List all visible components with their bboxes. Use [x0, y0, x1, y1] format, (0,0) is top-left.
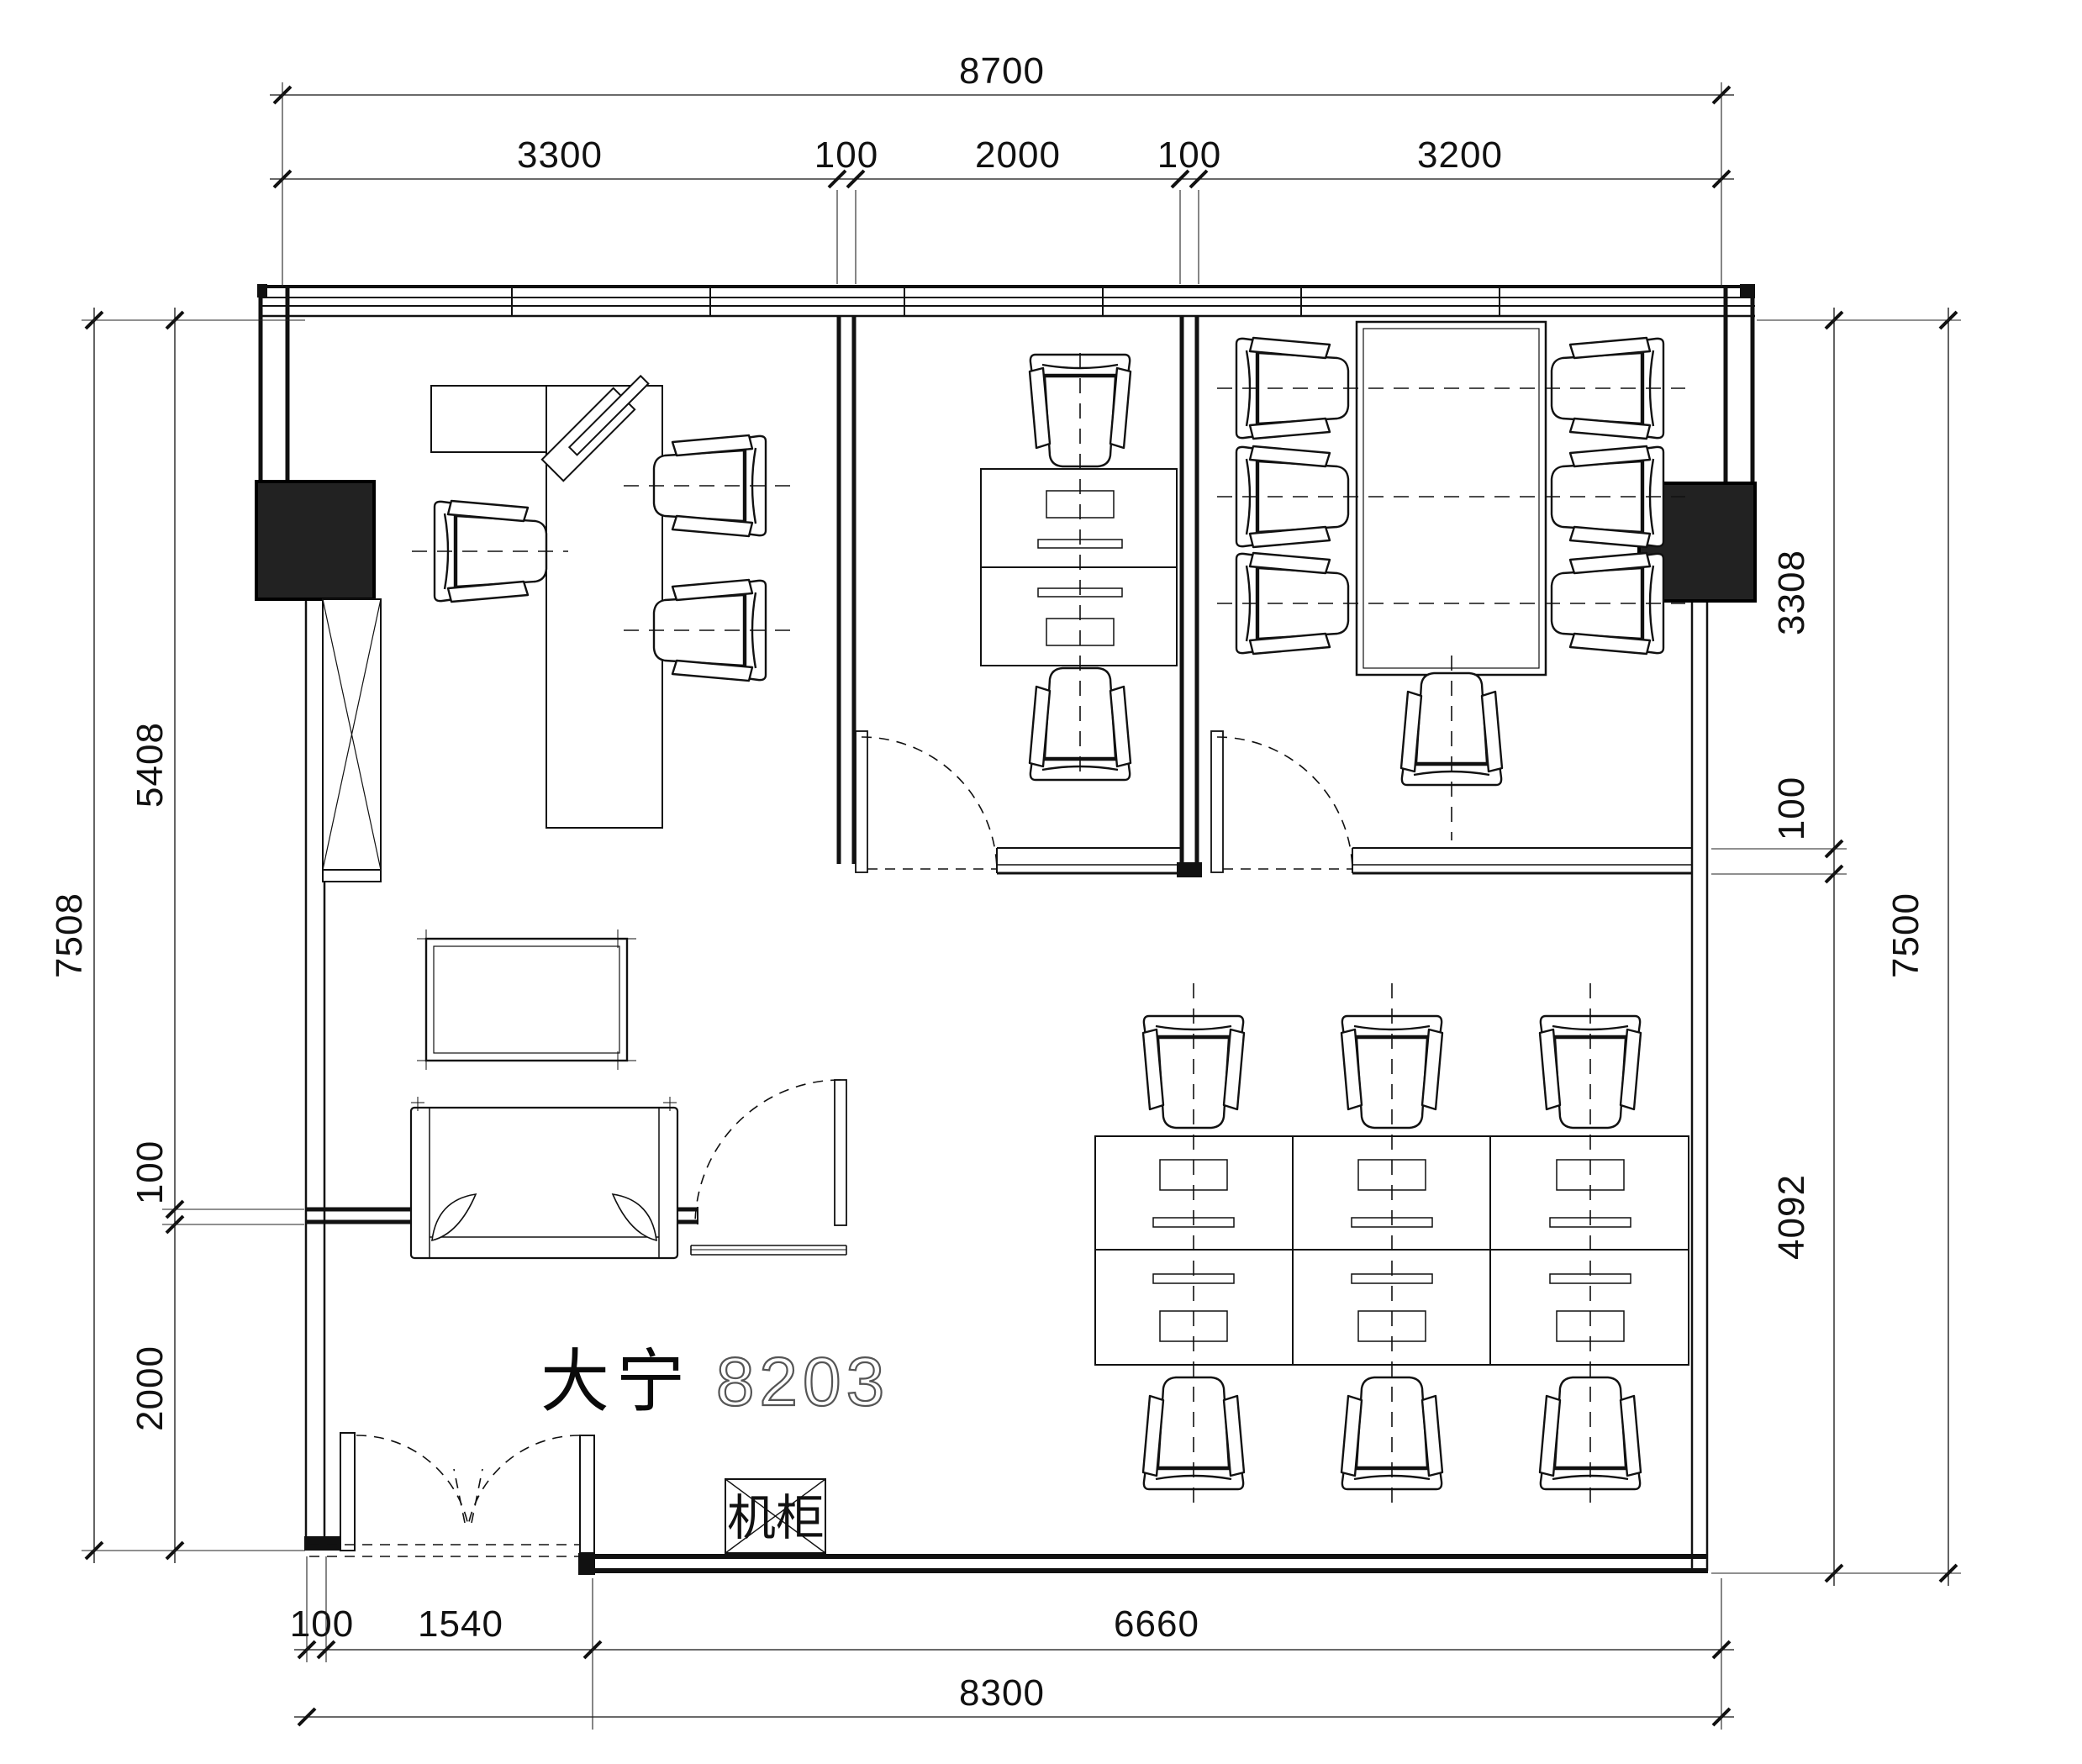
door-executive-office — [695, 1080, 846, 1225]
south-wall — [591, 1556, 1708, 1571]
dimension-top: 8700 3300 100 2000 100 3200 — [270, 50, 1734, 287]
dim-left-seg1: 100 — [129, 1140, 171, 1204]
dim-left-seg0: 5408 — [129, 722, 171, 808]
column-west — [256, 482, 374, 599]
unit-label-number: 8203 — [716, 1344, 889, 1420]
dim-left-seg2: 2000 — [129, 1345, 171, 1431]
server-cabinet: 机柜 — [725, 1479, 825, 1553]
west-wall — [261, 287, 343, 1551]
dim-right-seg0: 3308 — [1771, 550, 1812, 635]
dim-bottom-seg1: 1540 — [418, 1603, 503, 1645]
unit-label-prefix: 大宁 — [540, 1344, 692, 1420]
dim-bottom-seg2: 6660 — [1114, 1603, 1199, 1645]
dim-top-seg4: 3200 — [1417, 134, 1503, 176]
middle-office-desks — [981, 469, 1177, 666]
partition-wall-a — [839, 316, 854, 864]
window-mullions — [512, 287, 1500, 316]
unit-label: 大宁 8203 — [540, 1344, 889, 1420]
wall-step — [304, 1536, 343, 1551]
dimension-bottom: 100 1540 6660 8300 — [290, 1556, 1734, 1730]
partition-wall-b — [1177, 316, 1202, 877]
server-cabinet-label: 机柜 — [727, 1491, 825, 1545]
sofa — [411, 1097, 677, 1258]
dim-top-total: 8700 — [959, 50, 1045, 92]
conference-table — [1357, 322, 1546, 675]
north-window-wall — [257, 284, 1755, 316]
dim-right-seg1: 100 — [1771, 777, 1812, 840]
dim-top-seg2: 2000 — [975, 134, 1061, 176]
dim-right-total: 7500 — [1885, 893, 1927, 978]
door-sill — [691, 1245, 846, 1255]
dim-bottom-seg0: 100 — [290, 1603, 354, 1645]
entry-double-door — [309, 1433, 595, 1575]
wardrobe-cabinet — [323, 599, 381, 882]
east-wall — [1692, 287, 1753, 1571]
dim-bottom-total: 8300 — [959, 1672, 1045, 1714]
floor-plan-canvas: 机柜 大宁 8203 8700 3300 100 2000 100 3200 7… — [0, 0, 2082, 1764]
dim-top-seg3: 100 — [1157, 134, 1221, 176]
door-middle-room — [856, 731, 997, 872]
dim-top-seg1: 100 — [814, 134, 878, 176]
coffee-table — [417, 929, 636, 1070]
dim-right-seg2: 4092 — [1771, 1174, 1812, 1260]
executive-desk — [431, 376, 662, 828]
door-conference-room — [1211, 731, 1352, 872]
partition-wall-south-of-rooms — [997, 848, 1692, 873]
dim-left-total: 7508 — [49, 893, 90, 978]
dim-top-seg0: 3300 — [517, 134, 603, 176]
